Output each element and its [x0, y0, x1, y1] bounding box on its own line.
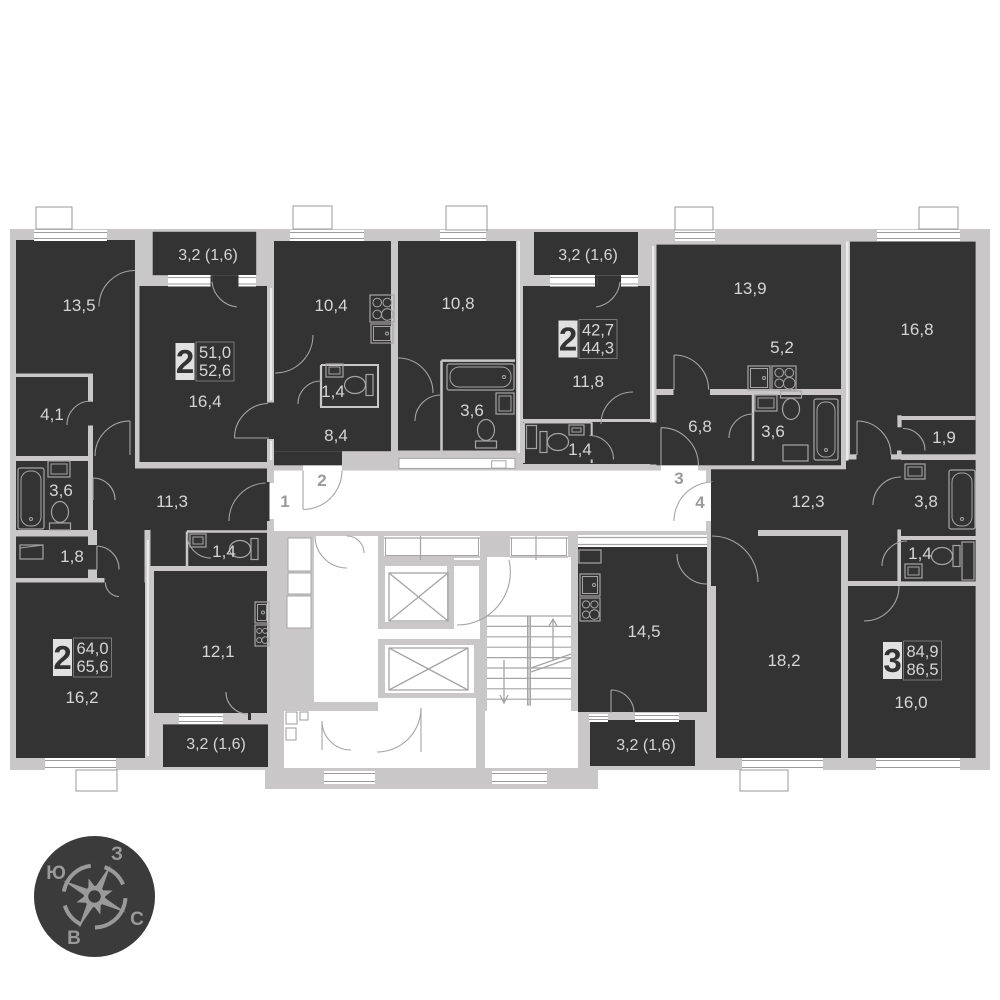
svg-text:1,4: 1,4 [568, 440, 592, 459]
svg-text:3: 3 [883, 642, 901, 679]
svg-text:16,2: 16,2 [65, 688, 98, 707]
svg-text:2: 2 [176, 343, 194, 380]
svg-text:З: З [111, 844, 123, 865]
svg-text:16,8: 16,8 [900, 320, 933, 339]
svg-text:14,5: 14,5 [627, 622, 660, 641]
svg-text:12,3: 12,3 [791, 492, 824, 511]
svg-text:3: 3 [674, 469, 683, 488]
svg-text:16,4: 16,4 [188, 392, 221, 411]
svg-text:52,6: 52,6 [199, 362, 231, 380]
svg-text:3,6: 3,6 [761, 422, 785, 441]
svg-text:2: 2 [53, 639, 71, 676]
svg-text:13,9: 13,9 [733, 279, 766, 298]
svg-text:1,4: 1,4 [212, 542, 236, 561]
svg-text:86,5: 86,5 [906, 661, 938, 679]
svg-text:3,6: 3,6 [49, 481, 73, 500]
svg-text:3,2 (1,6): 3,2 (1,6) [178, 247, 238, 264]
svg-text:13,5: 13,5 [62, 296, 95, 315]
svg-text:18,2: 18,2 [767, 651, 800, 670]
svg-text:В: В [67, 928, 81, 949]
svg-text:44,3: 44,3 [582, 340, 614, 358]
svg-text:2: 2 [559, 321, 577, 358]
svg-text:8,4: 8,4 [324, 426, 348, 445]
svg-text:1: 1 [280, 492, 289, 511]
svg-text:Ю: Ю [46, 863, 66, 884]
svg-text:6,8: 6,8 [688, 417, 712, 436]
svg-text:4,1: 4,1 [40, 405, 64, 424]
svg-text:64,0: 64,0 [76, 640, 108, 658]
svg-text:5,2: 5,2 [770, 338, 794, 357]
svg-text:51,0: 51,0 [199, 344, 231, 362]
svg-text:65,6: 65,6 [76, 658, 108, 676]
svg-text:10,8: 10,8 [441, 294, 474, 313]
svg-text:84,9: 84,9 [906, 643, 938, 661]
svg-text:11,8: 11,8 [572, 372, 604, 391]
svg-text:1,9: 1,9 [932, 428, 956, 447]
svg-text:1,4: 1,4 [908, 544, 932, 563]
svg-text:2: 2 [317, 471, 326, 490]
svg-text:12,1: 12,1 [201, 642, 234, 661]
svg-text:16,0: 16,0 [894, 693, 927, 712]
svg-text:3,8: 3,8 [914, 492, 938, 511]
svg-text:3,6: 3,6 [460, 401, 484, 420]
svg-text:11,3: 11,3 [156, 492, 188, 511]
svg-text:10,4: 10,4 [314, 296, 347, 315]
svg-text:3,2 (1,6): 3,2 (1,6) [558, 247, 618, 264]
svg-text:4: 4 [695, 493, 705, 512]
svg-text:С: С [130, 909, 144, 930]
svg-text:42,7: 42,7 [582, 322, 614, 340]
svg-text:1,4: 1,4 [321, 382, 345, 401]
svg-text:1,8: 1,8 [60, 547, 84, 566]
svg-text:3,2 (1,6): 3,2 (1,6) [616, 737, 676, 754]
svg-text:3,2 (1,6): 3,2 (1,6) [186, 736, 246, 753]
